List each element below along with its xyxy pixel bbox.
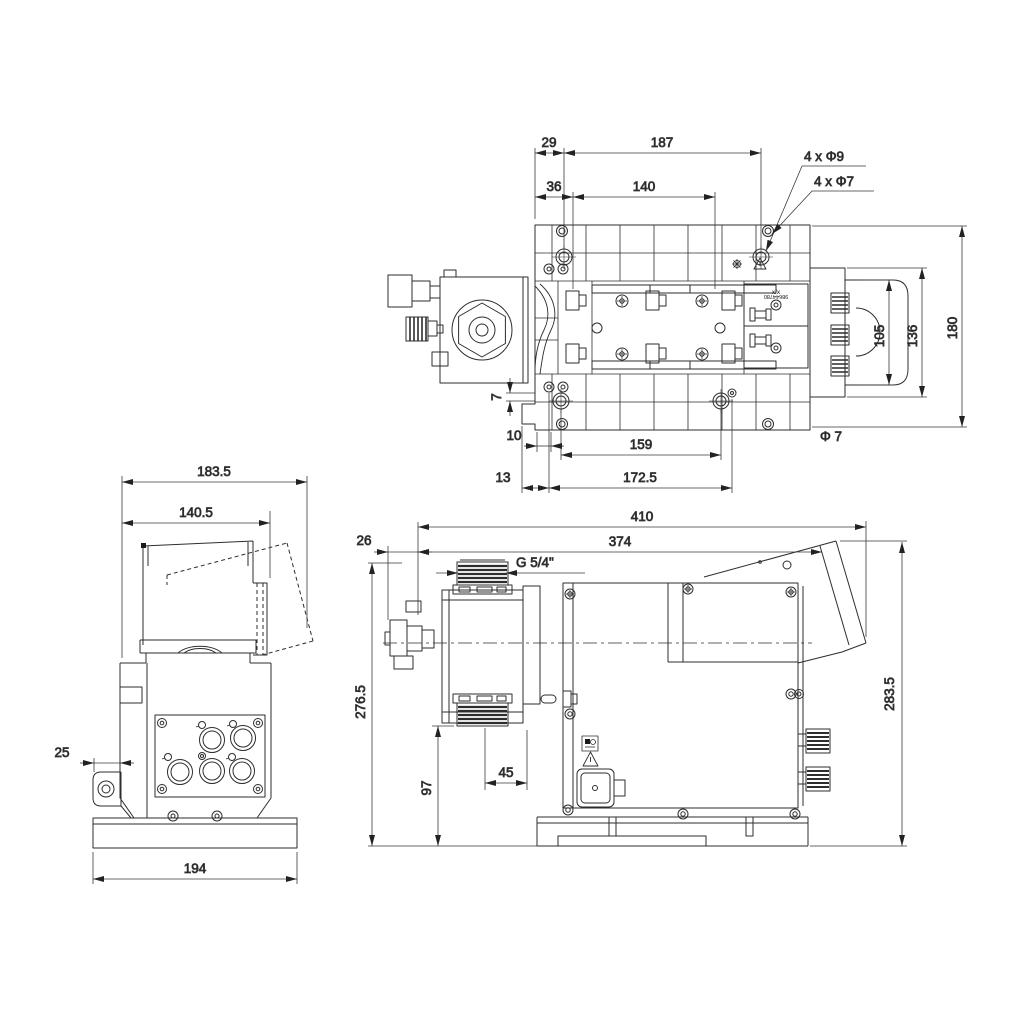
dim-283-5: 283.5 [882,677,897,711]
dim-45: 45 [498,765,513,780]
dim-159: 159 [630,437,653,452]
dim-410: 410 [631,509,654,524]
front-view [93,541,313,848]
dim-172-5: 172.5 [623,470,657,485]
warning-label [583,752,598,766]
dim-187: 187 [651,135,674,150]
technical-drawing-page: 29 187 36 140 4 x Φ9 4 x Φ7 105 136 180 … [0,0,1024,1024]
top-view [388,225,908,430]
wall-bracket [93,772,131,818]
dim-10: 10 [506,428,521,443]
rating-label [582,736,598,751]
dim-105: 105 [872,325,887,348]
holes-d9 [549,245,773,413]
motor-housing [541,541,866,819]
front-view-dimensions: 183.5 140.5 25 194 [54,464,307,884]
dim-140-5: 140.5 [179,505,213,520]
cable-gland-plate [155,715,265,797]
dim-7: 7 [489,393,504,401]
dim-183-5: 183.5 [197,464,231,479]
dim-97: 97 [419,780,434,795]
dim-26: 26 [356,533,371,548]
dim-374: 374 [609,534,632,549]
dim-29: 29 [541,135,556,150]
label-holes-d9: 4 x Φ9 [804,149,844,164]
gear-icon [732,259,742,269]
dim-180: 180 [945,317,960,340]
end-cap-top [810,268,908,397]
dim-194: 194 [184,861,207,876]
top-view-dimensions: 29 187 36 140 4 x Φ9 4 x Φ7 105 136 180 … [489,135,967,493]
housing-screws [563,584,800,819]
connector-box [577,769,625,807]
label-dia-7: Φ 7 [820,429,842,444]
label-serial: 98644780 [764,293,788,299]
label-holes-d7: 4 x Φ7 [814,174,854,189]
dim-276-5: 276.5 [353,685,368,719]
plate-screws [616,295,708,360]
dim-140: 140 [633,179,656,194]
dim-25: 25 [54,745,69,760]
pump-head-top [388,270,528,383]
dim-136: 136 [905,325,920,348]
base-rail [537,817,808,846]
open-cover-dashed [167,543,313,655]
label-thread: G 5/4" [516,555,554,570]
dim-13: 13 [495,470,510,485]
side-view [383,541,866,846]
dim-36: 36 [546,179,561,194]
pump-dimensional-drawing: 29 187 36 140 4 x Φ9 4 x Φ7 105 136 180 … [0,0,1024,1024]
holes-d7 [557,226,774,430]
